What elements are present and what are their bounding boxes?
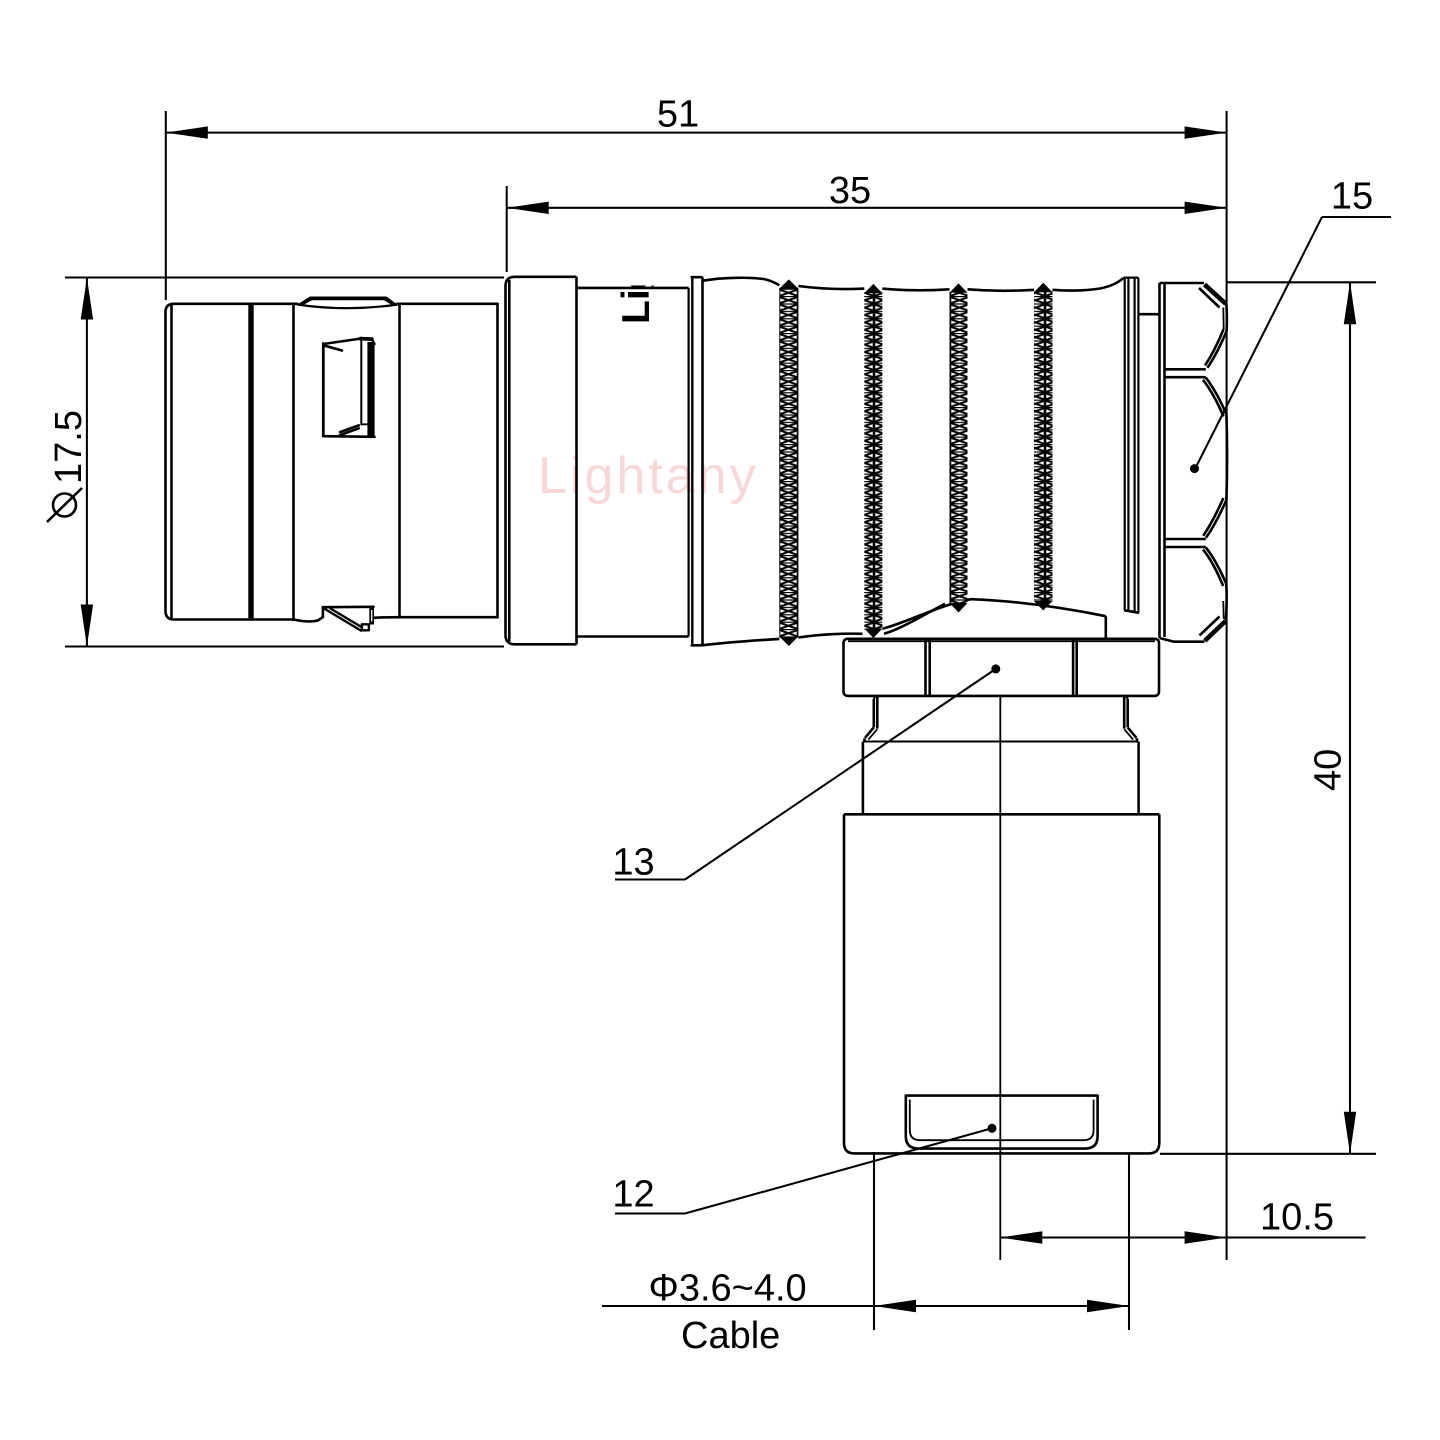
svg-text:10.5: 10.5 bbox=[1260, 1197, 1334, 1239]
svg-text:17.5: 17.5 bbox=[48, 410, 90, 484]
svg-text:35: 35 bbox=[829, 170, 871, 212]
svg-text:15: 15 bbox=[1331, 176, 1373, 218]
svg-text:13: 13 bbox=[612, 842, 654, 884]
svg-text:12: 12 bbox=[612, 1174, 654, 1216]
svg-text:Lightany: Lightany bbox=[538, 447, 759, 505]
svg-text:40: 40 bbox=[1308, 749, 1350, 791]
svg-text:Φ3.6~4.0: Φ3.6~4.0 bbox=[649, 1268, 807, 1310]
svg-text:Cable: Cable bbox=[681, 1315, 780, 1357]
svg-text:51: 51 bbox=[657, 94, 699, 136]
